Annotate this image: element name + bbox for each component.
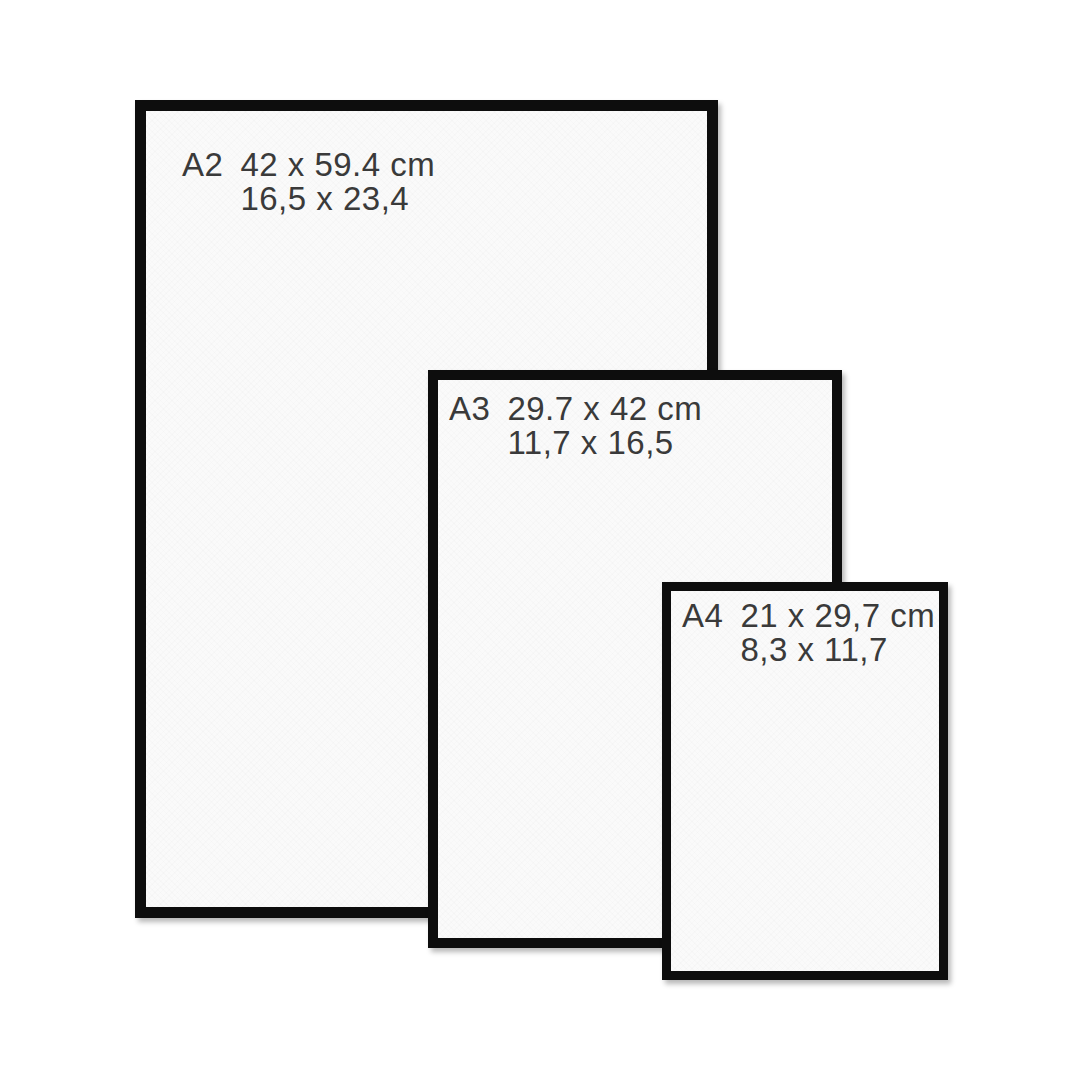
size-label-a3: A3 29.7 x 42 cm 11,7 x 16,5 bbox=[438, 380, 832, 460]
imperial-size-a4: 8,3 x 11,7 bbox=[740, 633, 888, 667]
imperial-size-a3: 11,7 x 16,5 bbox=[507, 426, 673, 460]
dimensions-a2: 42 x 59.4 cm 16,5 x 23,4 bbox=[240, 148, 435, 216]
dimensions-a3: 29.7 x 42 cm 11,7 x 16,5 bbox=[507, 392, 702, 460]
size-label-a4: A4 21 x 29,7 cm 8,3 x 11,7 bbox=[671, 591, 939, 667]
format-name-a2: A2 bbox=[182, 148, 223, 182]
metric-size-a2: 42 x 59.4 cm bbox=[240, 148, 435, 182]
size-label-a2: A2 42 x 59.4 cm 16,5 x 23,4 bbox=[146, 111, 707, 216]
dimensions-a4: 21 x 29,7 cm 8,3 x 11,7 bbox=[740, 599, 935, 667]
format-name-a4: A4 bbox=[682, 599, 723, 633]
size-guide-diagram: A2 42 x 59.4 cm 16,5 x 23,4 A3 29.7 x 42… bbox=[0, 0, 1080, 1080]
metric-size-a4: 21 x 29,7 cm bbox=[740, 599, 935, 633]
format-name-a3: A3 bbox=[449, 392, 490, 426]
imperial-size-a2: 16,5 x 23,4 bbox=[240, 182, 409, 216]
metric-size-a3: 29.7 x 42 cm bbox=[507, 392, 702, 426]
frame-a4: A4 21 x 29,7 cm 8,3 x 11,7 bbox=[662, 582, 948, 980]
